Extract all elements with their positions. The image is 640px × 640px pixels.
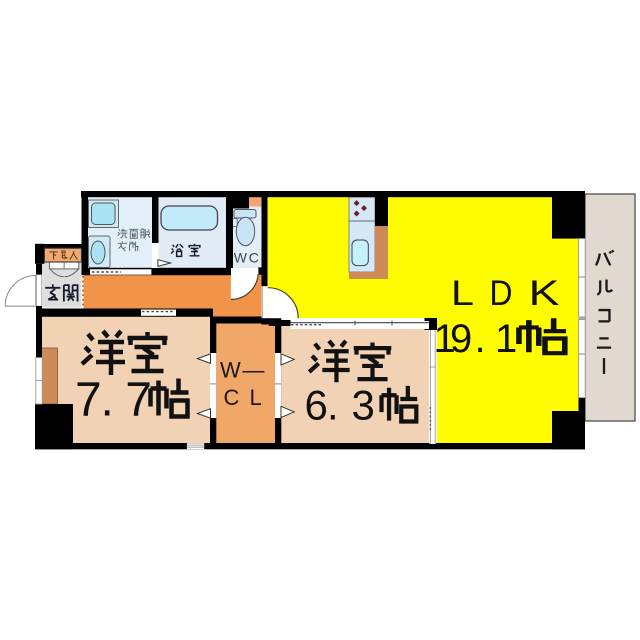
svg-text:WC: WC — [234, 250, 259, 266]
svg-text:19.1: 19.1 — [434, 317, 518, 361]
svg-text:7.7: 7.7 — [75, 374, 152, 427]
svg-text:K: K — [529, 274, 560, 313]
svg-text:W—: W— — [220, 358, 265, 383]
svg-text:L: L — [451, 274, 474, 313]
svg-text:D: D — [490, 274, 513, 313]
